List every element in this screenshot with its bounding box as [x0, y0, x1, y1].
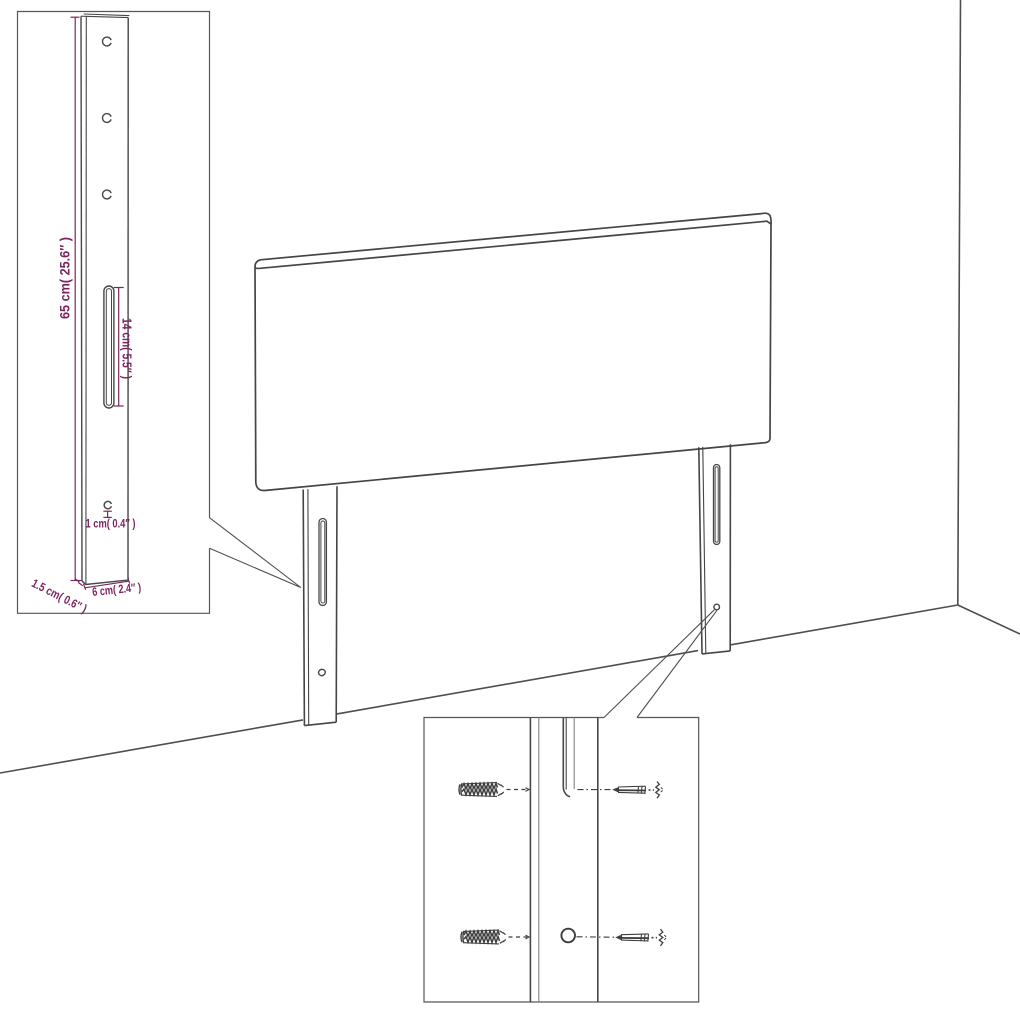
svg-text:65 cm( 25.6″ ): 65 cm( 25.6″ ): [58, 237, 73, 319]
svg-text:1.5 cm( 0.6″ ): 1.5 cm( 0.6″ ): [29, 576, 89, 616]
svg-text:14 cm( 5.5″ ): 14 cm( 5.5″ ): [120, 318, 134, 379]
svg-text:1 cm( 0.4″ ): 1 cm( 0.4″ ): [86, 517, 136, 531]
